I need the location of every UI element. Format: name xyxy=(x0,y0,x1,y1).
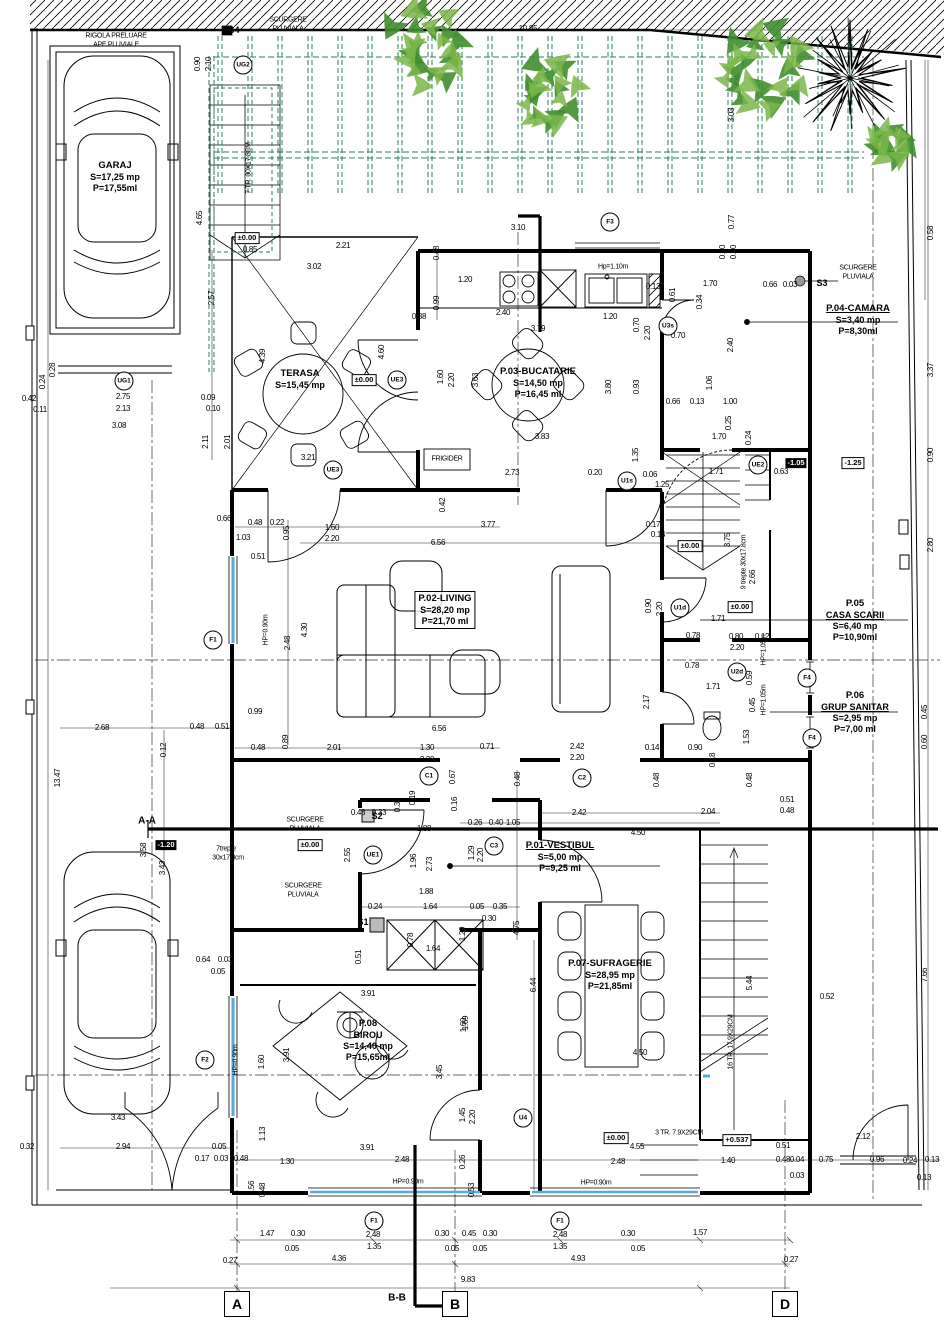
dimension-label: 1.64 xyxy=(426,945,440,953)
dimension-label: 0.51 xyxy=(355,950,363,964)
dimension-label: 0.03 xyxy=(783,281,797,289)
dimension-label: 0.48 xyxy=(234,1155,248,1163)
opening-marker-c2: C2 xyxy=(573,769,592,788)
dimension-label: 3.37 xyxy=(927,363,935,377)
room-label-line: GARAJ xyxy=(90,160,140,172)
dimension-label: 0.27 xyxy=(223,1257,237,1265)
dimension-label: 1.13 xyxy=(259,1127,267,1141)
room-label-garaj: GARAJS=17,25 mpP=17,55ml xyxy=(90,160,140,194)
dimension-label: 3.45 xyxy=(436,1065,444,1079)
dimension-label: 1.35 xyxy=(367,1243,381,1251)
dimension-label: 0.66 xyxy=(763,281,777,289)
annotation-note: 3 TR. 7.9X29CM xyxy=(655,1130,703,1137)
dimension-label: 1.29 xyxy=(459,927,467,941)
room-label-p-07-sufragerie: P.07-SUFRAGERIES=28,95 mpP=21,85ml xyxy=(568,958,652,992)
dimension-label: 4.65 xyxy=(196,211,204,225)
dimension-label: 1.35 xyxy=(632,448,640,462)
dimension-label: 2.13 xyxy=(116,405,130,413)
dimension-label: 1.20 xyxy=(603,313,617,321)
room-label-line: P.07-SUFRAGERIE xyxy=(568,958,652,970)
dimension-label: 0.51 xyxy=(215,723,229,731)
opening-marker-ue2: UE2 xyxy=(749,456,768,475)
dimension-label: 1.71 xyxy=(709,468,723,476)
dimension-label: 0.58 xyxy=(927,226,935,240)
dimension-label: 7.66 xyxy=(921,968,929,982)
dimension-label: 0.06 xyxy=(643,471,657,479)
annotation-note: FRIGIDER xyxy=(431,456,462,463)
dimension-label: 1.25 xyxy=(655,481,669,489)
dimension-label: 4.50 xyxy=(631,829,645,837)
dimension-label: 2.57 xyxy=(208,291,216,305)
dimension-label: 1.29 xyxy=(468,846,476,860)
dimension-label: 0.24 xyxy=(368,903,382,911)
level-label: -1.20 xyxy=(155,840,176,850)
dimension-label: 2.68 xyxy=(95,724,109,732)
dimension-label: 0.48 xyxy=(776,1156,790,1164)
dimension-label: 2.80 xyxy=(927,538,935,552)
annotation-note: 9 trepte 30x17.8cm xyxy=(741,535,748,590)
dimension-label: 0.48 xyxy=(514,772,522,786)
dimension-label: 0.26 xyxy=(468,819,482,827)
dimension-label: 0.13 xyxy=(646,283,660,291)
dimension-label: 0.51 xyxy=(251,553,265,561)
dimension-label: 0.78 xyxy=(407,933,415,947)
dimension-label: 1.20 xyxy=(458,276,472,284)
dimension-label: 3.91 xyxy=(283,1048,291,1062)
dimension-label: 1.88 xyxy=(417,825,431,833)
secondary-walls xyxy=(240,450,810,1140)
dimension-label: 0.63 xyxy=(774,468,788,476)
dimension-label: 0.17 xyxy=(195,1155,209,1163)
room-label-line: P=8,30ml xyxy=(826,326,890,337)
pergola-frame xyxy=(214,88,272,252)
dimension-label: 0.80 xyxy=(729,633,743,641)
opening-marker-f1: F1 xyxy=(365,1212,384,1231)
dimension-label: 1.70 xyxy=(703,280,717,288)
dimension-label: 3.43 xyxy=(159,861,167,875)
dimension-label: 9.83 xyxy=(461,1276,475,1284)
dimension-label: 0.95 xyxy=(283,526,291,540)
room-label-line: TERASA xyxy=(275,368,325,380)
grid-axis-a: A xyxy=(224,1291,250,1317)
room-label-line: P.06 xyxy=(821,690,889,702)
annotation-note: HP=0.90m xyxy=(581,1180,612,1187)
dimension-label: 0.05 xyxy=(473,1245,487,1253)
dimension-label: 0.90 xyxy=(194,57,202,71)
room-label-line: S=28,95 mp xyxy=(568,970,652,981)
dimension-label: 2.20 xyxy=(656,602,664,616)
dimension-label: 3.08 xyxy=(112,422,126,430)
dimension-label: 0.25 xyxy=(725,416,733,430)
room-label-line: P=17,55ml xyxy=(90,183,140,194)
dimension-label: 3.80 xyxy=(605,380,613,394)
dimension-label: 2.48 xyxy=(366,1231,380,1239)
dimension-label: 0.32 xyxy=(20,1143,34,1151)
dimension-label: 0.12 xyxy=(160,743,168,757)
room-label-line: S=6,40 mp xyxy=(826,621,884,632)
dimension-label: 0.48 xyxy=(259,1183,267,1197)
opening-marker-f1: F1 xyxy=(551,1212,570,1231)
dimension-label: 0.42 xyxy=(439,498,447,512)
dimension-label: 2.12 xyxy=(856,1133,870,1141)
dimension-label: 0.30 xyxy=(483,1230,497,1238)
opening-marker-u3s: U3s xyxy=(659,317,678,336)
dimension-label: 0.13 xyxy=(690,398,704,406)
dimension-label: 0.48 xyxy=(433,246,441,260)
dimension-label: 0.67 xyxy=(449,770,457,784)
room-label-line: BIROU xyxy=(343,1030,393,1041)
dimension-label: 0.48 xyxy=(251,744,265,752)
dimension-label: 1.40 xyxy=(721,1157,735,1165)
annotation-note: SCURGERE xyxy=(286,817,323,824)
dimension-label: 1.05 xyxy=(506,819,520,827)
dimension-label: 0.05 xyxy=(470,903,484,911)
annotation-note: 7trepte xyxy=(216,846,236,853)
annotation-note: HP=0.90m xyxy=(263,615,270,646)
level-label: ±0.00 xyxy=(352,374,377,386)
dimension-label: 3.77 xyxy=(481,521,495,529)
dimension-label: 0.19 xyxy=(409,791,417,805)
dimension-label: 0.38 xyxy=(412,313,426,321)
annotation-note: HP=1.05m xyxy=(761,685,768,716)
dimension-label: 0.20 xyxy=(588,469,602,477)
room-label-p-02-living: P.02-LIVINGS=28,20 mpP=21,70 ml xyxy=(415,592,474,628)
dimension-label: 0.90 xyxy=(688,744,702,752)
dimension-label: 0.26 xyxy=(459,1155,467,1169)
dimension-label: 0.05 xyxy=(445,1245,459,1253)
dimension-label: 0.78 xyxy=(686,632,700,640)
dimension-label: 2.48 xyxy=(395,1156,409,1164)
level-label: ±0.00 xyxy=(678,540,703,552)
dimension-label: 2.66 xyxy=(749,570,757,584)
dimension-label: 2.20 xyxy=(420,756,434,764)
dimension-label: 1.45 xyxy=(459,1108,467,1122)
dimension-label: 3.83 xyxy=(535,433,549,441)
dimension-label: 0.45 xyxy=(749,698,757,712)
dimension-label: 2.73 xyxy=(505,469,519,477)
room-label-line: P.03-BUCATARIE xyxy=(500,366,576,378)
annotation-note: SCURGERE xyxy=(284,883,321,890)
dimension-label: 0.32 xyxy=(394,798,402,812)
dimension-label: 0.14 xyxy=(645,744,659,752)
dimension-label: 0.03 xyxy=(214,1155,228,1163)
room-label-line: S=17,25 mp xyxy=(90,172,140,183)
dimension-label: 0.03 xyxy=(790,1172,804,1180)
dimension-label: 0.52 xyxy=(820,993,834,1001)
dimension-label: 1.60 xyxy=(258,1055,266,1069)
annotation-note: 16 TR. 17.9X29CM xyxy=(728,1015,735,1070)
dimension-label: 0.53 xyxy=(468,1183,476,1197)
dimension-label: 0.85 xyxy=(243,246,257,254)
opening-marker-u1d: U1d xyxy=(671,599,690,618)
level-label: ±0.00 xyxy=(604,1132,629,1144)
dimension-label: 2.42 xyxy=(572,809,586,817)
annotation-note: HP=0.90m xyxy=(233,1045,240,1076)
dimension-label: 2.20 xyxy=(570,754,584,762)
room-label-p-06: P.06GRUP SANITARS=2,95 mpP=7,00 ml xyxy=(821,690,889,736)
room-label-line: S=14,40 mp xyxy=(343,1041,393,1052)
dimension-label: 3.03 xyxy=(728,108,736,122)
annotation-note: 30x17.8cm xyxy=(212,855,244,862)
dimension-label: 2.40 xyxy=(727,338,735,352)
dimension-label: 3.91 xyxy=(360,1144,374,1152)
room-label-line: P=21,70 ml xyxy=(418,616,471,627)
room-label-line: P=16,45 ml xyxy=(500,389,576,400)
dimension-label: 4.75 xyxy=(513,921,521,935)
dimension-label: 2.17 xyxy=(643,695,651,709)
dimension-label: 3.91 xyxy=(361,990,375,998)
room-label-line: P=7,00 ml xyxy=(821,724,889,735)
dimension-label: 0.27 xyxy=(784,1256,798,1264)
dimension-label: 2.48 xyxy=(553,1231,567,1239)
room-label-line: S=2,95 mp xyxy=(821,713,889,724)
dimension-label: 3.10 xyxy=(511,224,525,232)
room-label-line: P.04-CAMARA xyxy=(826,303,890,315)
dimension-label: 0.14 xyxy=(651,531,665,539)
dimension-label: 0.42 xyxy=(22,395,36,403)
opening-marker-s1: S1 xyxy=(357,917,368,927)
dimension-label: 4.55 xyxy=(630,1143,644,1151)
dimension-label: 1.47 xyxy=(260,1230,274,1238)
dimension-label: 3.63 xyxy=(472,373,480,387)
annotation-note: SCURGERE xyxy=(839,265,876,272)
annotation-note: HP=0.90m xyxy=(393,1179,424,1186)
opening-marker-u1s: U1s xyxy=(618,472,637,491)
dimension-label: 0.99 xyxy=(248,708,262,716)
opening-marker-s2: S2 xyxy=(371,811,382,821)
dimension-label: 4.30 xyxy=(301,623,309,637)
dimension-label: 0.35 xyxy=(493,903,507,911)
dimension-label: 2.10 xyxy=(205,57,213,71)
dimension-label: 2.01 xyxy=(327,744,341,752)
dimension-label: 2.11 xyxy=(202,435,210,449)
annotation-note: 7 TR. 30X17.8CM xyxy=(246,142,253,193)
dimension-label: 0.61 xyxy=(669,288,677,302)
dimension-label: 0.70 xyxy=(633,318,641,332)
dimension-label: 0.45 xyxy=(921,705,929,719)
dimension-label: 1.60 xyxy=(460,1018,468,1032)
dimension-label: 0.64 xyxy=(196,956,210,964)
grid-axis-b: B xyxy=(442,1291,468,1317)
dimension-label: 3.02 xyxy=(307,263,321,271)
dimension-label: 0.24 xyxy=(903,1157,917,1165)
dimension-label: 5.44 xyxy=(746,976,754,990)
opening-marker-u4: U4 xyxy=(514,1109,533,1128)
annotation-note: PLUVIALA xyxy=(289,826,320,833)
dimension-label: 3.58 xyxy=(140,843,148,857)
dimension-label: 0.77 xyxy=(728,215,736,229)
dimension-label: 0.89 xyxy=(282,735,290,749)
opening-marker-s3: S3 xyxy=(816,278,827,288)
dimension-label: 2.20 xyxy=(477,848,485,862)
dimension-label: 1.53 xyxy=(743,730,751,744)
dimension-label: 0.04 xyxy=(790,1156,804,1164)
stairs xyxy=(210,85,770,1175)
dimension-label: 0.05 xyxy=(211,968,225,976)
dimension-label: 6.56 xyxy=(432,725,446,733)
opening-marker-ue3: UE3 xyxy=(388,371,407,390)
dimension-label: 2.20 xyxy=(644,326,652,340)
level-label: ±0.00 xyxy=(728,601,753,613)
dimension-label: 0.93 xyxy=(633,380,641,394)
level-label: -1.05 xyxy=(785,458,806,468)
sofa xyxy=(337,561,610,717)
grid-axis-d: D xyxy=(772,1291,798,1317)
dimension-label: 4.93 xyxy=(571,1255,585,1263)
dimension-label: 2.94 xyxy=(116,1143,130,1151)
room-label-line: P.05 xyxy=(826,598,884,610)
dimension-label: 1.88 xyxy=(419,888,433,896)
annotation-note: APE PLUVIALE xyxy=(93,42,139,49)
dimension-label: 1.71 xyxy=(711,615,725,623)
dimension-label: 6.44 xyxy=(530,978,538,992)
dimension-label: 0.40 xyxy=(719,245,727,259)
opening-marker-f4: F4 xyxy=(803,729,822,748)
room-label-line: S=5,00 mp xyxy=(526,852,594,863)
dimension-label: 0.03 xyxy=(218,956,232,964)
dimension-label: 0.66 xyxy=(666,398,680,406)
dimension-label: 0.59 xyxy=(746,671,754,685)
annotation-note: Hp=1.10m xyxy=(598,264,628,271)
site-boundary xyxy=(26,28,924,1205)
dimension-label: 0.05 xyxy=(631,1245,645,1253)
dimension-label: 2.48 xyxy=(611,1158,625,1166)
dimension-label: 0.75 xyxy=(819,1156,833,1164)
driveway-gate xyxy=(56,1092,230,1190)
dimension-label: 3.21 xyxy=(301,454,315,462)
room-label-line: S=3,40 mp xyxy=(826,315,890,326)
level-label: ±0.00 xyxy=(298,839,323,851)
opening-marker-c3: C3 xyxy=(485,837,504,856)
dimension-label: 0.60 xyxy=(921,735,929,749)
level-label: ±0.00 xyxy=(235,232,260,244)
dimension-label: 0.56 xyxy=(248,1181,256,1195)
annotation-note: RIGOLA PRELUARE xyxy=(85,33,146,40)
dimension-label: 3.43 xyxy=(111,1114,125,1122)
dimension-label: 2.01 xyxy=(224,435,232,449)
dimension-label: 0.18 xyxy=(709,753,717,767)
dimension-label: 0.78 xyxy=(685,662,699,670)
dimension-label: 1.30 xyxy=(280,1158,294,1166)
room-label-line: S=14,50 mp xyxy=(500,378,576,389)
dimension-label: 2.75 xyxy=(116,393,130,401)
section-label-bb: B-B xyxy=(388,1293,406,1304)
dimension-label: 0.24 xyxy=(745,431,753,445)
dimension-label: 2.55 xyxy=(344,848,352,862)
dimension-label: 2.20 xyxy=(730,644,744,652)
dimension-label: 2.20 xyxy=(448,373,456,387)
opening-marker-f4: F4 xyxy=(798,669,817,688)
room-label-p-08: P.08BIROUS=14,40 mpP=15,65ml xyxy=(343,1018,393,1064)
annotation-note: HP=1.05m xyxy=(761,635,768,666)
dimension-label: 0.30 xyxy=(435,1230,449,1238)
dimension-label: 0.45 xyxy=(462,1230,476,1238)
dimension-label: 0.66 xyxy=(217,515,231,523)
dimension-label: 1.30 xyxy=(420,744,434,752)
dimension-label: 0.05 xyxy=(285,1245,299,1253)
level-label: -1.25 xyxy=(841,457,864,469)
dimension-label: 2.20 xyxy=(325,535,339,543)
level-label: +0.537 xyxy=(722,1134,751,1146)
dimension-label: 1.64 xyxy=(423,903,437,911)
room-label-line: S=15,45 mp xyxy=(275,380,325,391)
room-label-p-05: P.05CASA SCARIIS=6,40 mpP=10,90ml xyxy=(826,598,884,644)
dimension-label: 0.51 xyxy=(776,1142,790,1150)
room-label-line: P=10,90ml xyxy=(826,632,884,643)
dimension-label: 0.48 xyxy=(248,519,262,527)
dimension-label: 3.75 xyxy=(724,533,732,547)
dimension-label: 4.60 xyxy=(378,345,386,359)
dimension-label: 0.51 xyxy=(780,796,794,804)
dimension-label: 0.05 xyxy=(212,1143,226,1151)
opening-marker-f3: F3 xyxy=(601,213,620,232)
floor-plan-sheet: 10.850.902.103.030.770.584.653.102.213.0… xyxy=(0,0,944,1320)
opening-marker-ug1: UG1 xyxy=(115,372,134,391)
room-label-terasa: TERASAS=15,45 mp xyxy=(275,368,325,391)
room-label-line: P=21,85ml xyxy=(568,981,652,992)
room-label-p-04-camara: P.04-CAMARAS=3,40 mpP=8,30ml xyxy=(826,303,890,337)
dimension-label: 0.09 xyxy=(201,394,215,402)
dimension-label: 0.16 xyxy=(451,797,459,811)
dimension-label: 1.70 xyxy=(712,433,726,441)
dimension-label: 3.79 xyxy=(531,325,545,333)
dimension-label: 4.36 xyxy=(332,1255,346,1263)
dimension-label: 1.35 xyxy=(553,1243,567,1251)
dimension-label: 4.50 xyxy=(633,1049,647,1057)
dimension-label: 2.42 xyxy=(570,743,584,751)
toilet xyxy=(703,712,721,740)
dimension-label: 2.73 xyxy=(426,857,434,871)
dimension-label: 2.20 xyxy=(469,1110,477,1124)
dimension-label: 0.40 xyxy=(730,245,738,259)
room-label-line: CASA SCARII xyxy=(826,610,884,621)
opening-marker-ue1: UE1 xyxy=(364,846,383,865)
dimension-label: 0.48 xyxy=(190,723,204,731)
dimension-label: 0.11 xyxy=(33,406,47,414)
room-label-p-01-vestibul: P.01-VESTIBULS=5,00 mpP=9,25 ml xyxy=(526,840,594,874)
tree-branch xyxy=(798,68,850,78)
dimension-label: 0.99 xyxy=(433,296,441,310)
garage-walls xyxy=(50,46,180,373)
dimension-label: 10.85 xyxy=(519,25,538,33)
dimension-label: 0.17 xyxy=(646,521,660,529)
dimension-label: 0.13 xyxy=(917,1174,931,1182)
dimension-label: 6.56 xyxy=(431,539,445,547)
room-label-line: P.01-VESTIBUL xyxy=(526,840,594,852)
dimension-label: 0.48 xyxy=(746,773,754,787)
dimension-label: 4.39 xyxy=(259,349,267,363)
opening-marker-f2: F2 xyxy=(196,1051,215,1070)
dimension-label: 0.34 xyxy=(696,295,704,309)
dimension-label: 0.96 xyxy=(870,1156,884,1164)
dimension-lines xyxy=(48,30,940,1291)
dimension-label: 0.13 xyxy=(925,1156,939,1164)
dimension-label: 0.28 xyxy=(49,363,57,377)
dimension-label: 1.00 xyxy=(723,398,737,406)
opening-marker-s4: S4 xyxy=(228,25,239,35)
room-label-line: P=9,25 ml xyxy=(526,863,594,874)
opening-marker-c1: C1 xyxy=(420,767,439,786)
dimension-label: 2.21 xyxy=(336,242,350,250)
room-label-line: GRUP SANITAR xyxy=(821,702,889,713)
annotation-note: PLUVIALA xyxy=(287,892,318,899)
dimension-label: 2.48 xyxy=(284,636,292,650)
section-label-aa: A-A xyxy=(138,816,156,827)
dimension-label: 1.71 xyxy=(706,683,720,691)
dimension-label: 0.48 xyxy=(653,773,661,787)
dimension-label: 1.60 xyxy=(437,370,445,384)
opening-marker-u2d: U2d xyxy=(728,663,747,682)
